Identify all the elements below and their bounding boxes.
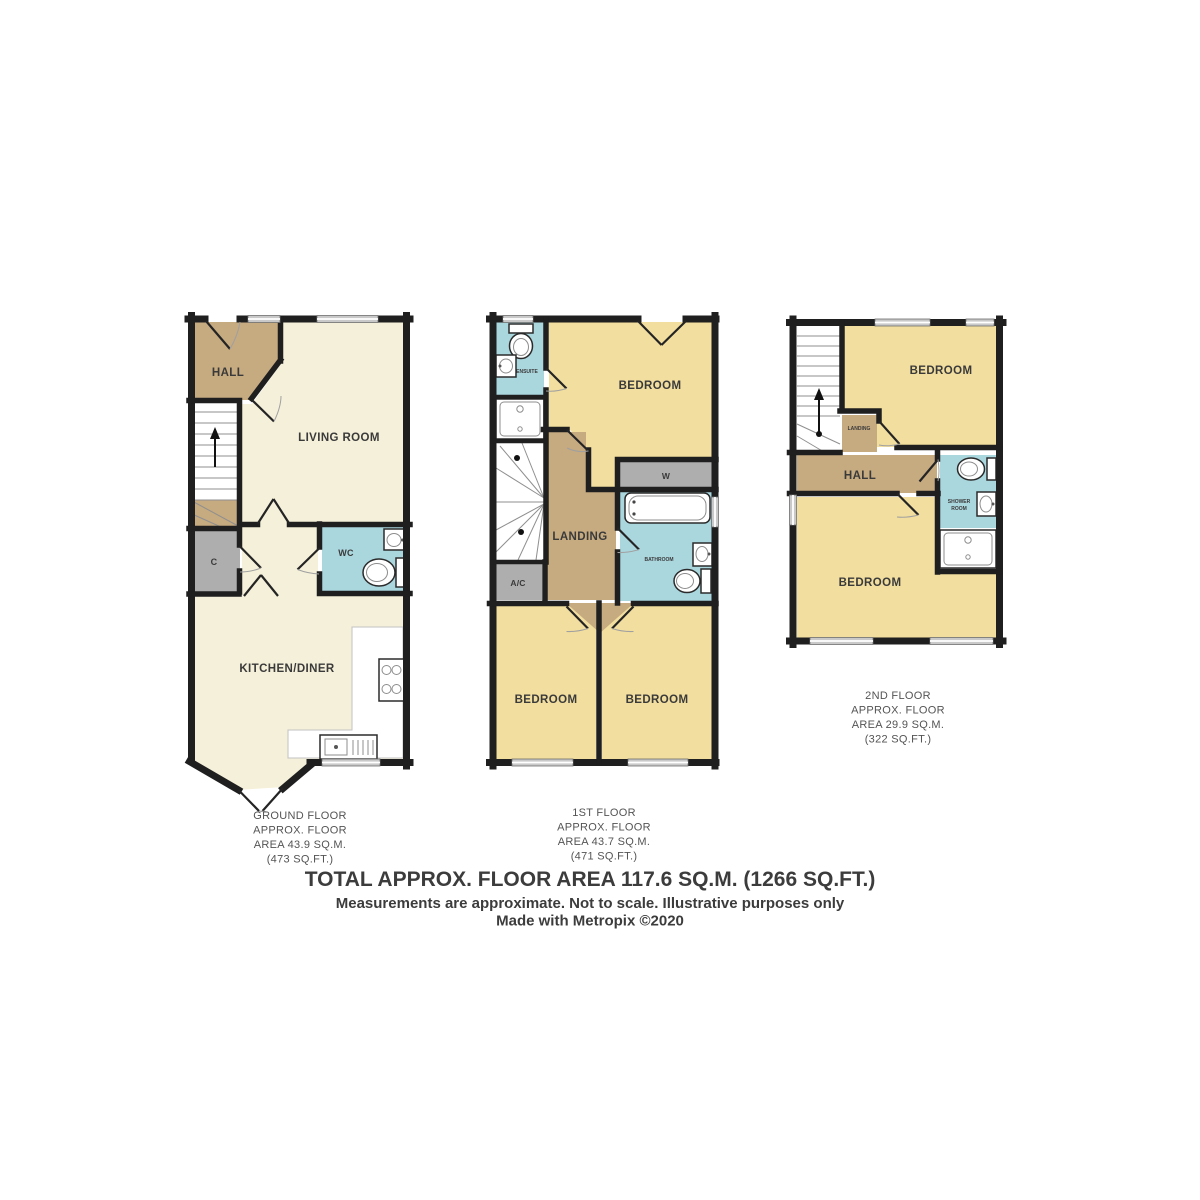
kitchen-sink-icon <box>320 735 377 759</box>
disclaimer-text: Measurements are approximate. Not to sca… <box>336 895 845 912</box>
room-label-wardrobe: W <box>662 471 671 481</box>
room-label-landing: LANDING <box>848 426 871 432</box>
svg-text:2ND FLOOR: 2ND FLOOR <box>865 690 931 702</box>
svg-text:APPROX. FLOOR: APPROX. FLOOR <box>851 705 945 717</box>
room-label-bedroom-top: BEDROOM <box>910 365 973 377</box>
first-floor-plan: ENSUITE BEDROOM W LANDING BATHROOM A/C B… <box>490 316 719 863</box>
sink-icon <box>693 543 712 566</box>
ground-floor-plan: HALL LIVING ROOM C WC KITCHEN/DINER GROU… <box>188 316 410 866</box>
svg-text:GROUND FLOOR: GROUND FLOOR <box>253 810 346 822</box>
room-label-bedroom: BEDROOM <box>619 380 682 392</box>
total-area-text: TOTAL APPROX. FLOOR AREA 117.6 SQ.M. (12… <box>305 868 876 891</box>
second-floor-caption: 2ND FLOOR APPROX. FLOOR AREA 29.9 SQ.M. … <box>851 690 945 746</box>
sink-icon <box>977 492 996 516</box>
room-label-hall: HALL <box>212 367 244 379</box>
room-label-cupboard: C <box>211 557 218 567</box>
svg-text:(471 SQ.FT.): (471 SQ.FT.) <box>571 851 638 863</box>
toilet-icon <box>363 558 406 587</box>
room-label-bedroom-bottom: BEDROOM <box>839 577 902 589</box>
room-label-airing-cupboard: A/C <box>510 578 525 588</box>
sink-icon <box>384 529 406 550</box>
stairs-ground <box>192 401 240 527</box>
floorplan-page: HALL LIVING ROOM C WC KITCHEN/DINER GROU… <box>0 0 1200 1200</box>
shower-icon <box>940 530 996 568</box>
second-floor-plan: BEDROOM LANDING HALL SHOWER ROOM BEDROOM… <box>790 319 1004 746</box>
footer: TOTAL APPROX. FLOOR AREA 117.6 SQ.M. (12… <box>305 868 876 930</box>
room-label-hall: HALL <box>844 470 876 482</box>
shower-icon <box>496 399 544 439</box>
room-label-bathroom: BATHROOM <box>644 557 673 563</box>
svg-text:AREA 43.9 SQ.M.: AREA 43.9 SQ.M. <box>254 839 347 851</box>
toilet-icon <box>958 458 997 480</box>
toilet-icon <box>509 324 533 359</box>
room-label-wc: WC <box>338 548 354 558</box>
room-landing <box>842 415 877 452</box>
svg-text:(473 SQ.FT.): (473 SQ.FT.) <box>267 854 334 866</box>
svg-text:AREA 43.7 SQ.M.: AREA 43.7 SQ.M. <box>558 836 651 848</box>
room-label-landing: LANDING <box>552 531 607 543</box>
ground-floor-caption: GROUND FLOOR APPROX. FLOOR AREA 43.9 SQ.… <box>253 810 347 866</box>
svg-text:APPROX. FLOOR: APPROX. FLOOR <box>253 825 347 837</box>
svg-text:(322 SQ.FT.): (322 SQ.FT.) <box>865 734 932 746</box>
credit-text: Made with Metropix ©2020 <box>496 913 684 930</box>
floorplan-image: HALL LIVING ROOM C WC KITCHEN/DINER GROU… <box>0 0 1200 1200</box>
room-label-ensuite: ENSUITE <box>516 369 538 375</box>
stairs-first <box>496 443 544 560</box>
room-bedroom-3 <box>602 606 712 762</box>
room-label-shower-line2: ROOM <box>951 506 967 512</box>
room-label-living: LIVING ROOM <box>298 432 380 444</box>
stairs-second <box>797 326 840 452</box>
room-label-bedroom-3: BEDROOM <box>626 694 689 706</box>
sink-icon <box>496 355 516 377</box>
first-floor-caption: 1ST FLOOR APPROX. FLOOR AREA 43.7 SQ.M. … <box>557 807 651 863</box>
bath-icon <box>625 493 710 523</box>
toilet-icon <box>674 569 711 593</box>
room-label-bedroom-2: BEDROOM <box>515 694 578 706</box>
svg-text:APPROX. FLOOR: APPROX. FLOOR <box>557 822 651 834</box>
hob-icon <box>379 659 404 701</box>
room-label-kitchen: KITCHEN/DINER <box>239 663 335 675</box>
svg-text:1ST FLOOR: 1ST FLOOR <box>572 807 636 819</box>
room-label-shower-line1: SHOWER <box>948 499 971 505</box>
room-bedroom-2 <box>496 606 596 762</box>
svg-text:AREA 29.9 SQ.M.: AREA 29.9 SQ.M. <box>852 719 945 731</box>
